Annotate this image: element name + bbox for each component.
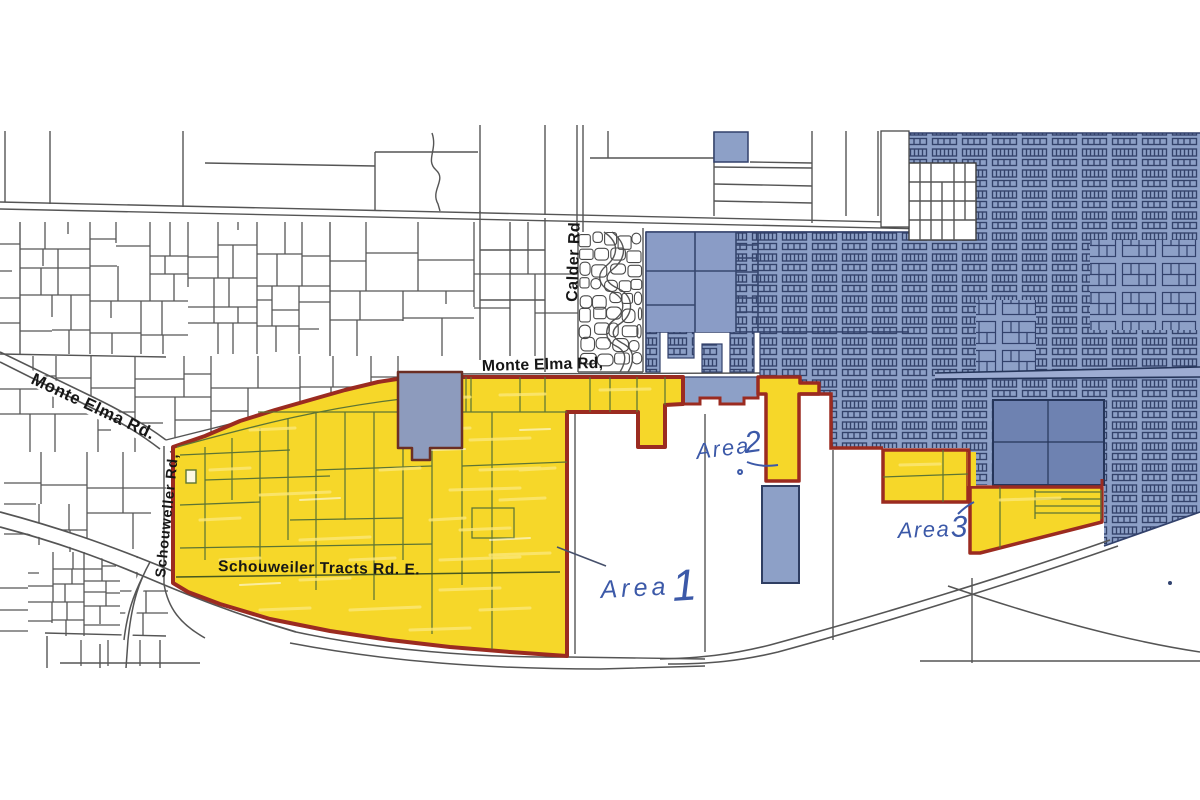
svg-text:Area: Area [598, 572, 670, 604]
svg-text:Schouweiler Tracts Rd. E.: Schouweiler Tracts Rd. E. [218, 558, 420, 579]
svg-text:3: 3 [950, 510, 968, 544]
svg-text:Area: Area [895, 516, 950, 543]
svg-text:1: 1 [670, 560, 698, 611]
svg-text:Calder Rd: Calder Rd [564, 222, 584, 303]
svg-text:Monte Elma Rd,: Monte Elma Rd, [482, 355, 604, 375]
